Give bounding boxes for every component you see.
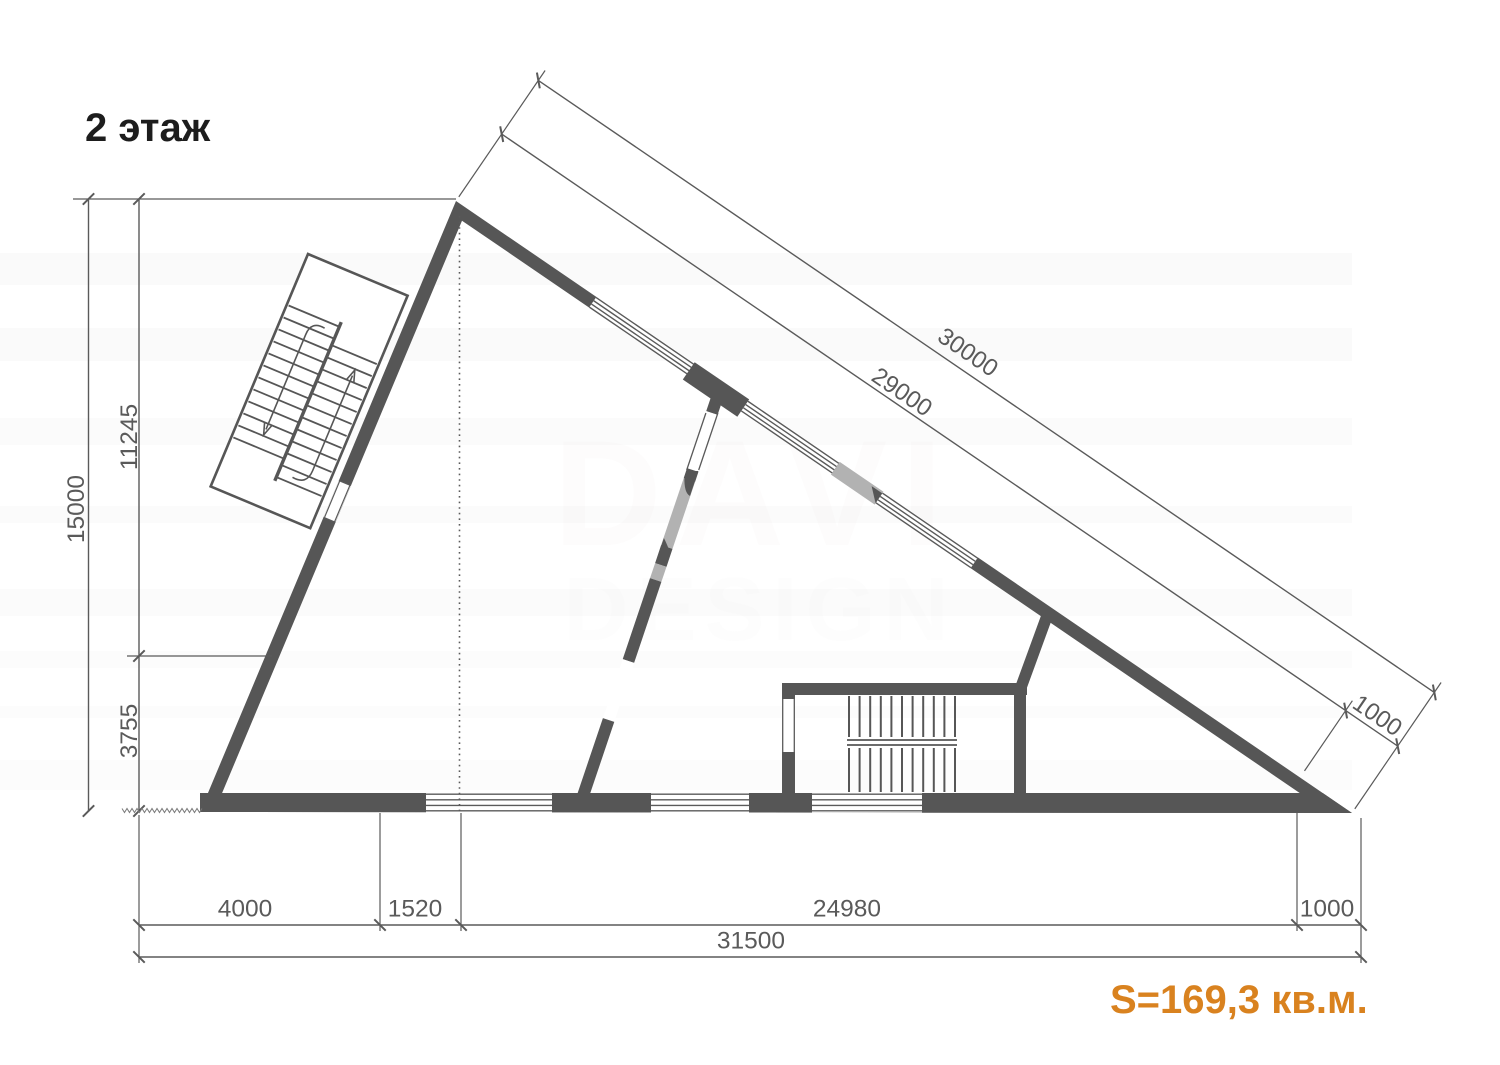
svg-text:1520: 1520	[388, 896, 443, 923]
svg-text:DAVI: DAVI	[553, 409, 956, 577]
svg-text:15000: 15000	[63, 475, 90, 543]
svg-text:31500: 31500	[717, 928, 785, 955]
svg-text:24980: 24980	[813, 896, 881, 923]
svg-text:1000: 1000	[1300, 896, 1355, 923]
svg-text:2 этаж: 2 этаж	[85, 106, 211, 150]
svg-text:3755: 3755	[116, 704, 143, 759]
svg-text:S=169,3 кв.м.: S=169,3 кв.м.	[1110, 978, 1368, 1022]
svg-text:11245: 11245	[116, 404, 143, 470]
svg-text:4000: 4000	[218, 896, 273, 923]
svg-text:DESIGN: DESIGN	[563, 560, 956, 660]
